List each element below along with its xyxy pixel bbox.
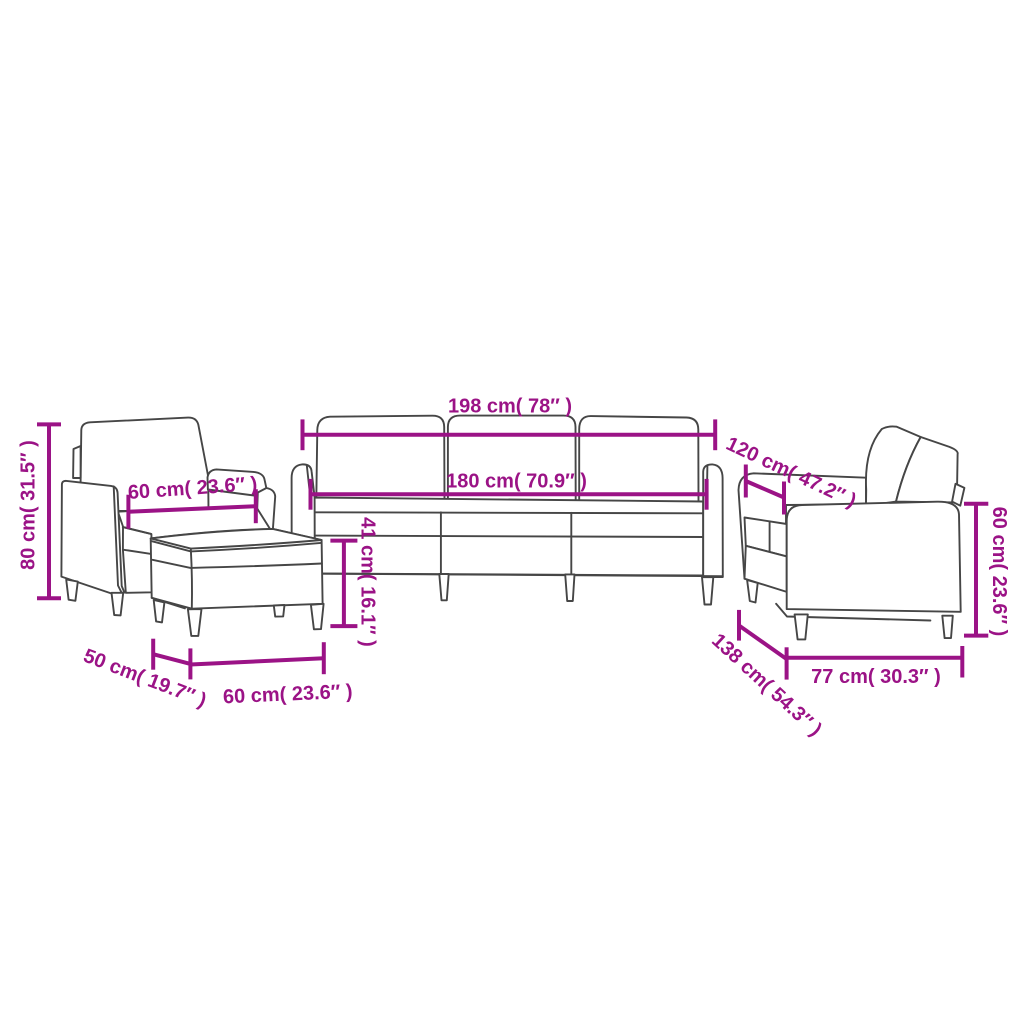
svg-text:41 cm( 16.1″ ): 41 cm( 16.1″ ) bbox=[357, 517, 379, 647]
svg-text:198 cm( 78″ ): 198 cm( 78″ ) bbox=[448, 396, 572, 418]
svg-text:80 cm( 31.5″ ): 80 cm( 31.5″ ) bbox=[18, 440, 40, 570]
svg-text:60 cm( 23.6″ ): 60 cm( 23.6″ ) bbox=[988, 507, 1010, 637]
svg-text:77 cm( 30.3″ ): 77 cm( 30.3″ ) bbox=[811, 666, 941, 688]
svg-text:180 cm( 70.9″ ): 180 cm( 70.9″ ) bbox=[446, 471, 587, 493]
